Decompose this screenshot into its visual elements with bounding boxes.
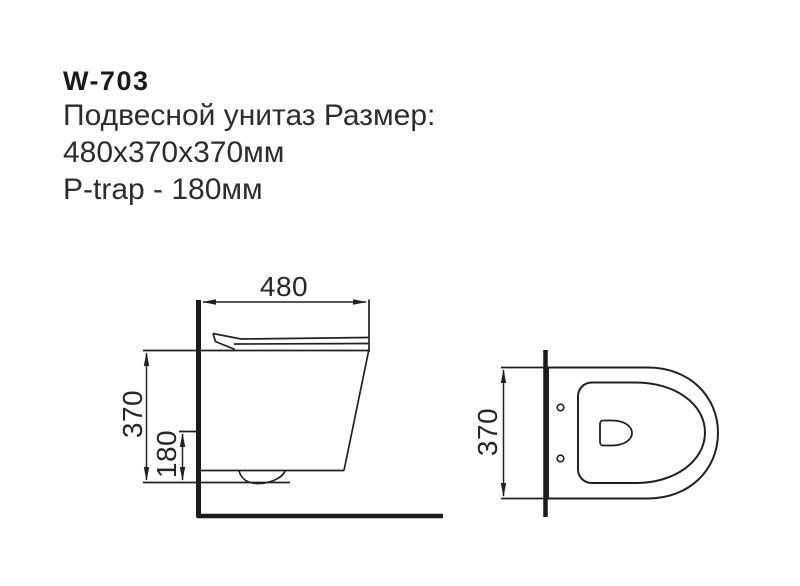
bowl-outer-outline bbox=[548, 368, 718, 499]
side-height-label: 370 bbox=[117, 390, 148, 438]
trap-outlet-curve bbox=[239, 471, 286, 484]
side-width-label: 480 bbox=[260, 271, 308, 302]
seat-line bbox=[234, 344, 369, 345]
dim-370-side-arrow-bottom bbox=[144, 467, 149, 481]
hinge-hole-top bbox=[557, 404, 564, 411]
drain-opening-outline bbox=[600, 421, 632, 446]
trap-height-label: 180 bbox=[151, 430, 182, 478]
product-spec-sheet: W-703 Подвесной унитаз Размер: 480x370x3… bbox=[0, 0, 800, 586]
dim-370-side-arrow-top bbox=[144, 352, 149, 366]
dim-370-top-arrow-bottom bbox=[501, 483, 506, 497]
seat-inner-outline bbox=[578, 383, 705, 484]
dim-480-arrow-left bbox=[202, 299, 216, 304]
dim-370-top-arrow-top bbox=[501, 369, 506, 383]
top-view: 370 bbox=[472, 350, 718, 517]
hinge-hole-bottom bbox=[557, 455, 564, 462]
lid-top-line bbox=[213, 334, 369, 340]
dim-480-arrow-right bbox=[353, 299, 367, 304]
top-width-label: 370 bbox=[472, 408, 503, 456]
bowl-front-slant bbox=[344, 352, 369, 471]
side-view: 480 370 180 bbox=[117, 271, 443, 518]
technical-drawing: 480 370 180 bbox=[0, 0, 800, 586]
